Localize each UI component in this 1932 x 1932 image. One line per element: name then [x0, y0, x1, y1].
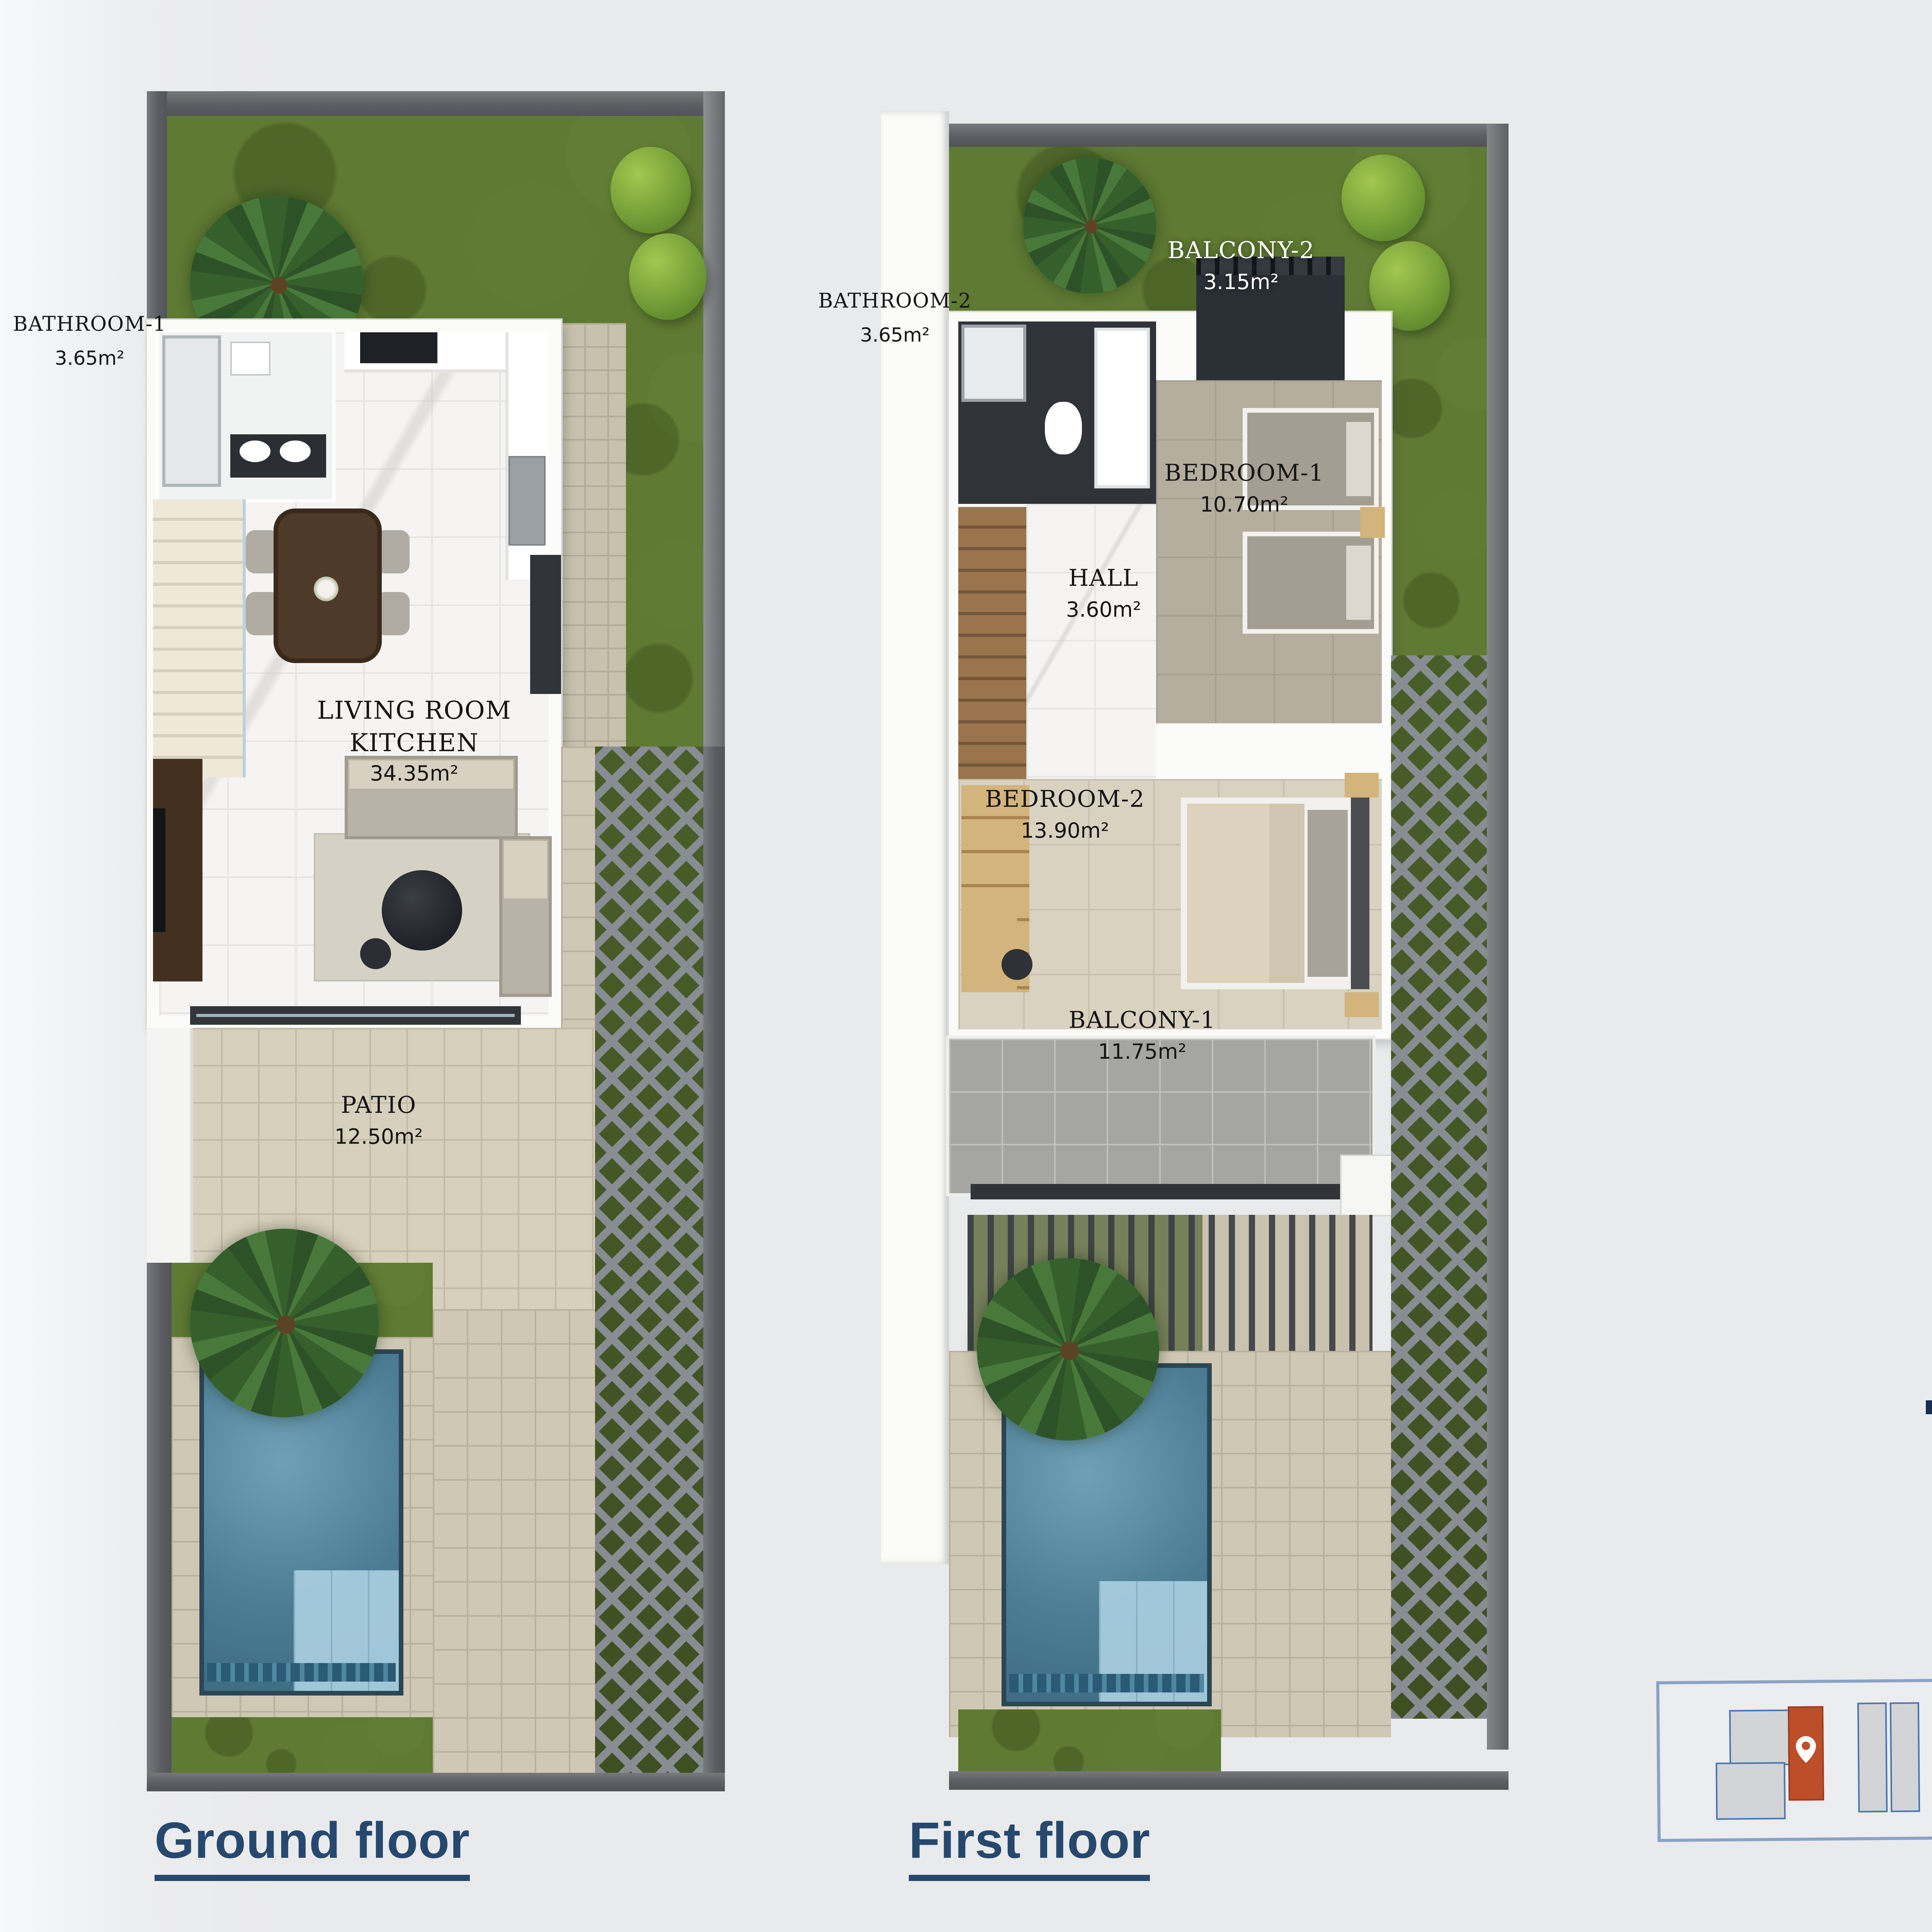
ff-grass-below-pool	[958, 1709, 1221, 1771]
gf-pool-tile-strip	[207, 1663, 396, 1682]
label-hall: HALL 3.60m²	[1066, 563, 1141, 628]
villa-title: VILLA 3	[1870, 1292, 1932, 1406]
ff-palmetto-icon	[1023, 158, 1156, 294]
label-bedroom2: BEDROOM-2 13.90m²	[985, 784, 1145, 849]
label-bathroom2: BATHROOM-2 3.65m²	[818, 286, 971, 351]
ff-vanity2	[1094, 328, 1150, 488]
ff-wall-right	[1487, 124, 1509, 1750]
gf-wall-right	[703, 91, 725, 747]
ff-driveway-lattice	[1391, 655, 1487, 1719]
ff-wall-top	[949, 124, 1509, 147]
label-balcony2: BALCONY-2 3.15m²	[1168, 235, 1315, 300]
ff-pool-tile-strip	[1009, 1674, 1204, 1692]
gf-garden-grass-right	[626, 320, 703, 747]
ff-bed2-pillow	[1346, 546, 1371, 620]
ff-headboard	[1351, 798, 1369, 989]
gf-coffee-table	[382, 870, 462, 951]
ff-double-bed	[1181, 798, 1369, 989]
living-name-line2: KITCHEN	[317, 726, 511, 759]
gf-sliding-door	[190, 1006, 521, 1025]
gf-patio-white-wall	[147, 1028, 193, 1263]
ff-bed2	[1243, 532, 1379, 634]
gf-stairs	[153, 499, 246, 777]
hall-area: 3.60m²	[1066, 595, 1141, 628]
gf-wall-right-bottom	[703, 747, 725, 1773]
bedroom1-name: BEDROOM-1	[1164, 457, 1324, 490]
label-living-room-kitchen: LIVING ROOM KITCHEN 34.35m²	[317, 694, 511, 791]
ground-floor-plan	[147, 91, 725, 1791]
villa-title-underline	[1926, 1400, 1932, 1414]
minimap-highlighted-villa	[1788, 1706, 1824, 1801]
balcony1-area: 11.75m²	[1069, 1037, 1216, 1070]
gf-tv	[153, 808, 165, 932]
gf-bush-icon-1	[611, 147, 691, 233]
ff-nightstand2	[1345, 773, 1379, 798]
gf-dining-table	[274, 509, 382, 663]
ff-nightstand3	[1345, 992, 1379, 1017]
map-pin-icon	[1796, 1736, 1816, 1771]
gf-side-table	[360, 938, 391, 969]
ff-hall-floor	[1026, 504, 1156, 779]
ff-duvet	[1187, 804, 1304, 983]
bedroom2-area: 13.90m²	[985, 816, 1145, 849]
gf-table-flowers	[314, 577, 338, 601]
living-area: 34.35m²	[317, 759, 511, 791]
gf-wall-bottom	[147, 1773, 725, 1791]
gf-central-walkway	[433, 1309, 595, 1773]
ff-bed1-pillow	[1346, 422, 1371, 496]
label-bedroom1: BEDROOM-1 10.70m²	[1164, 457, 1324, 522]
gf-sink-1	[240, 440, 270, 462]
first-floor-title: First floor	[909, 1811, 1150, 1881]
bathroom2-name: BATHROOM-2	[818, 286, 971, 318]
bathroom1-name: BATHROOM-1	[13, 309, 166, 342]
label-bathroom1: BATHROOM-1 3.65m²	[13, 309, 166, 374]
ff-bed-pillows	[1308, 810, 1348, 977]
minimap-building-1	[1729, 1709, 1791, 1765]
ff-toilet	[1045, 402, 1082, 454]
ff-balcony1-pillar	[1342, 1156, 1394, 1215]
ff-bush-icon-1	[1342, 155, 1425, 241]
gf-grass-below-pool	[172, 1717, 433, 1773]
floorplan-sheet: BATHROOM-1 3.65m² LIVING ROOM KITCHEN 34…	[0, 0, 1932, 1932]
balcony2-name: BALCONY-2	[1168, 235, 1315, 267]
gf-palm-tree-icon-pool	[190, 1229, 379, 1417]
gf-shower	[162, 335, 221, 487]
gf-side-walkway	[561, 747, 595, 1028]
ff-balcony1-railing	[971, 1184, 1348, 1199]
gf-wall-left-top	[147, 91, 167, 323]
gf-bathroom1-zone	[159, 332, 332, 499]
gf-fridge	[509, 456, 546, 546]
hall-name: HALL	[1066, 563, 1141, 595]
ff-garden-grass-right	[1391, 312, 1487, 655]
gf-building	[147, 320, 561, 1028]
gf-garden-walkway	[561, 323, 626, 747]
minimap-building-3	[1857, 1702, 1888, 1813]
first-floor-plan	[881, 111, 1530, 1793]
minimap-building-2	[1716, 1762, 1786, 1820]
gf-sofa-side	[499, 836, 552, 997]
bathroom1-area: 3.65m²	[13, 342, 166, 374]
ff-wall-bottom	[949, 1771, 1509, 1790]
bedroom2-name: BEDROOM-2	[985, 784, 1145, 816]
living-name-line1: LIVING ROOM	[317, 694, 511, 726]
ff-building	[949, 312, 1391, 1039]
gf-washer	[230, 342, 270, 376]
patio-name: PATIO	[335, 1090, 423, 1122]
gf-wall-top	[147, 91, 725, 116]
bathroom2-area: 3.65m²	[818, 318, 971, 351]
gf-bush-icon-2	[629, 233, 706, 320]
ff-palm-tree-icon-pool	[977, 1258, 1159, 1440]
ff-nightstand1	[1360, 507, 1385, 538]
gf-wall-media-panel	[530, 555, 561, 694]
gf-stove	[360, 332, 437, 363]
patio-area: 12.50m²	[335, 1122, 423, 1155]
balcony1-name: BALCONY-1	[1069, 1005, 1216, 1037]
ground-floor-title: Ground floor	[155, 1811, 470, 1881]
ff-stool	[1002, 949, 1032, 980]
balcony2-area: 3.15m²	[1168, 267, 1315, 300]
gf-wall-left-bottom	[147, 1263, 172, 1791]
ff-stairs	[958, 507, 1026, 779]
gf-driveway-lattice	[595, 747, 703, 1773]
ff-bathroom2-zone	[958, 321, 1156, 504]
label-balcony1: BALCONY-1 11.75m²	[1069, 1005, 1216, 1070]
minimap-building-4	[1890, 1702, 1920, 1812]
gf-sink-2	[280, 440, 311, 462]
bedroom1-area: 10.70m²	[1164, 490, 1324, 522]
site-minimap	[1656, 1676, 1932, 1842]
label-patio: PATIO 12.50m²	[335, 1090, 423, 1155]
